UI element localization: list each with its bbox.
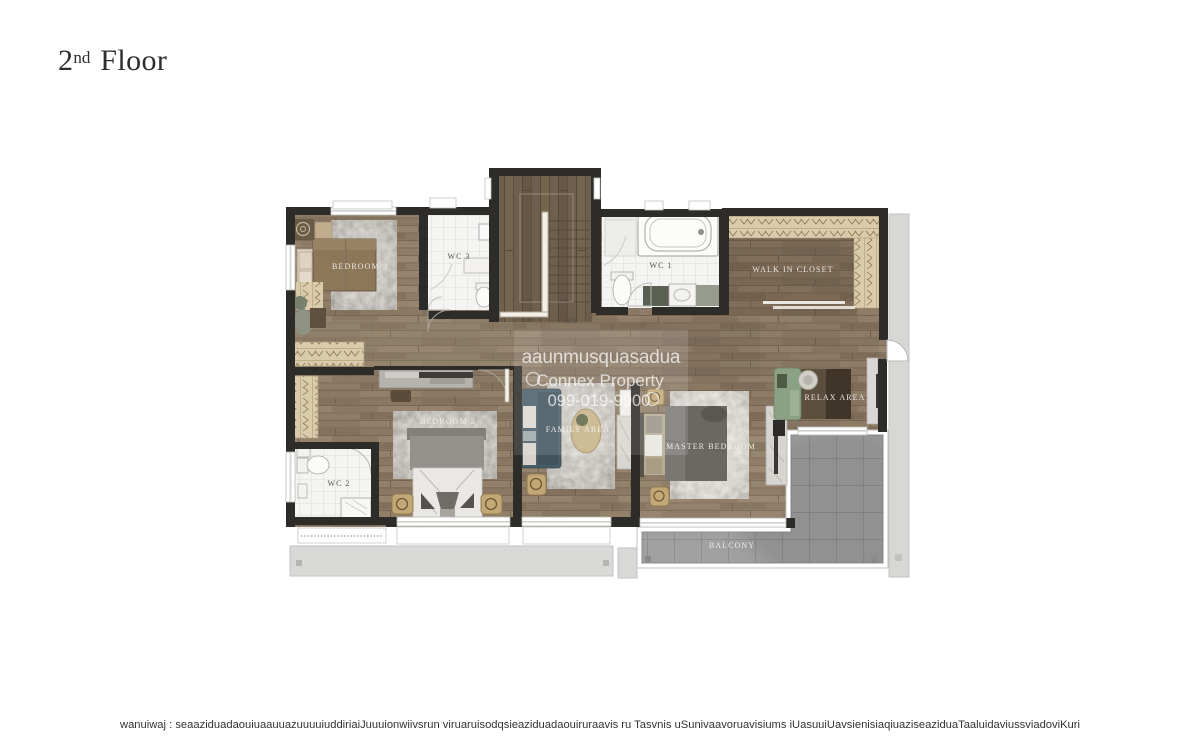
svg-text:WC 1: WC 1: [650, 261, 673, 270]
svg-text:BEDROOM 3: BEDROOM 3: [332, 262, 388, 271]
svg-text:DN: DN: [564, 316, 578, 325]
svg-text:Connex Property: Connex Property: [536, 371, 664, 390]
svg-text:WALK IN CLOSET: WALK IN CLOSET: [752, 265, 833, 274]
svg-text:099-019-9900: 099-019-9900: [548, 392, 651, 410]
svg-text:BEDROOM 2: BEDROOM 2: [420, 417, 476, 426]
svg-text:BALCONY: BALCONY: [709, 541, 755, 550]
svg-text:WC 2: WC 2: [328, 479, 351, 488]
svg-text:RELAX AREA: RELAX AREA: [805, 393, 866, 402]
svg-text:aaunmusquasadua: aaunmusquasadua: [522, 347, 681, 368]
svg-text:WC 3: WC 3: [448, 252, 471, 261]
